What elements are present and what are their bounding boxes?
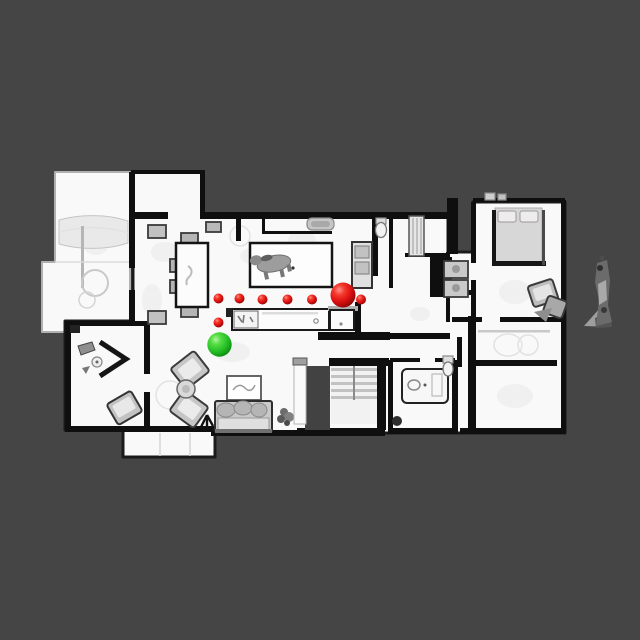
waypoint-dot — [235, 294, 245, 304]
waypoint-dot — [283, 295, 293, 305]
stair-pillar — [293, 358, 307, 424]
sofa — [215, 401, 272, 433]
waypoint-dot — [307, 295, 317, 305]
waypoint-dot — [258, 295, 268, 305]
waypoint-dot — [214, 318, 224, 328]
start-marker — [207, 332, 231, 356]
toilet-bowl — [443, 362, 453, 376]
dining-table — [176, 243, 208, 307]
tub-shape — [59, 216, 128, 249]
waypoint-dot — [356, 295, 366, 305]
staircase — [331, 366, 377, 424]
goal-marker — [331, 283, 356, 308]
stair-void — [305, 366, 330, 430]
waypoint-dot — [214, 294, 224, 304]
floorplan-canvas — [0, 0, 640, 640]
sideboard-bar — [226, 306, 358, 330]
powder-room-toilet — [376, 218, 387, 238]
